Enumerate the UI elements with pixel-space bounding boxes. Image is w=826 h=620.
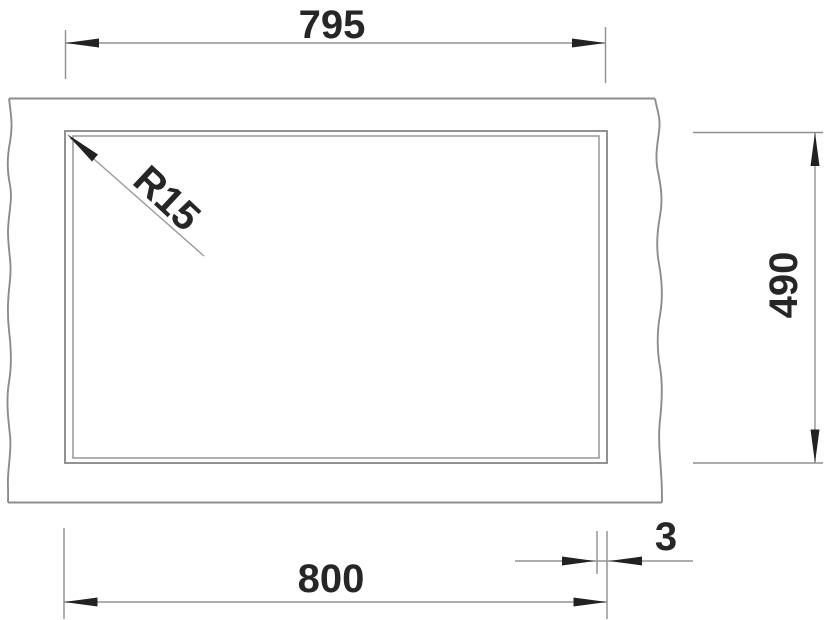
countertop-left-break-edge <box>7 99 11 503</box>
dim-800-value: 800 <box>298 557 365 601</box>
radius-leader-arrowhead-icon <box>67 134 98 162</box>
sink-cutout-drawing: R15 795 800 490 <box>0 0 826 620</box>
dim-3-arrow-left-icon <box>609 557 642 566</box>
dim-795-arrow-left-icon <box>66 39 100 48</box>
countertop-outline <box>7 99 662 503</box>
dim-490-arrow-up-icon <box>811 133 820 167</box>
dim-795-arrow-right-icon <box>572 39 606 48</box>
dim-800-arrow-right-icon <box>574 598 608 607</box>
dimension-bottom-width: 800 <box>64 528 607 619</box>
dim-3-arrow-right-icon <box>562 557 595 566</box>
dim-490-arrow-down-icon <box>811 430 820 464</box>
technical-drawing-canvas: R15 795 800 490 <box>0 0 826 620</box>
dimension-side-height: 490 <box>693 133 823 464</box>
dim-800-arrow-left-icon <box>64 598 98 607</box>
radius-label: R15 <box>125 157 209 239</box>
dim-490-value: 490 <box>762 252 806 319</box>
dimension-edge-gap: 3 <box>515 515 693 574</box>
dim-3-value: 3 <box>655 515 677 559</box>
countertop-right-break-edge <box>655 99 662 503</box>
dimension-top-width: 795 <box>66 3 606 83</box>
dim-795-value: 795 <box>299 3 366 47</box>
radius-callout: R15 <box>67 134 209 256</box>
